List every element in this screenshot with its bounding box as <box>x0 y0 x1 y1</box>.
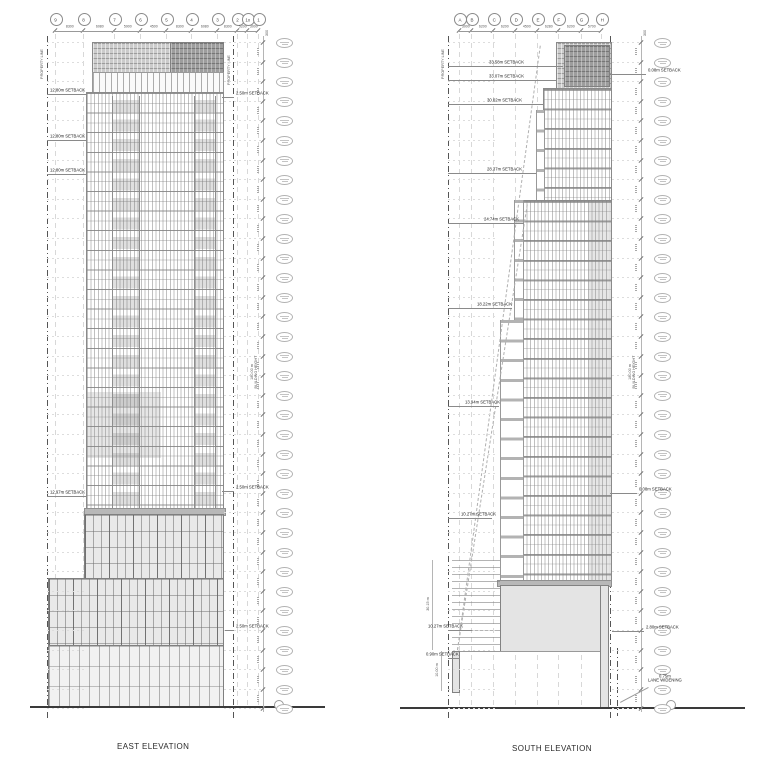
grid-dim-value: 5200 <box>239 25 247 29</box>
setback-label: 0.08m SETBACK <box>648 68 681 72</box>
level-tag <box>276 704 293 714</box>
south-lane-widening-line <box>617 648 618 716</box>
floor-height-dim <box>257 186 259 193</box>
floor-line-right <box>612 81 639 82</box>
floor-line-left <box>448 493 496 494</box>
floor-line-right <box>224 42 261 43</box>
floor-line-left <box>448 375 496 376</box>
level-tag <box>276 254 293 264</box>
floor-line-left <box>47 258 84 259</box>
level-tag <box>654 214 671 224</box>
floor-line-right <box>612 277 639 278</box>
east-midrise-shaded-band <box>87 392 161 458</box>
level-tag <box>276 97 293 107</box>
floor-height-dim <box>257 440 259 447</box>
level-tag <box>654 587 671 597</box>
floor-line-left <box>47 179 84 180</box>
south-podium-wall <box>500 585 608 652</box>
floor-line-left <box>448 316 496 317</box>
floor-height-dim <box>635 107 637 114</box>
grid-bubble-9: 9 <box>50 13 63 26</box>
floor-height-dim <box>257 499 259 506</box>
setback-leader <box>448 308 512 309</box>
floor-line-right <box>224 101 261 102</box>
floor-line-right <box>612 316 639 317</box>
setback-leader <box>448 104 543 105</box>
south-soffit-line <box>458 651 606 652</box>
grid-dim-value: 4500 <box>150 25 158 29</box>
grid-dim-value: 6200 <box>501 25 509 29</box>
floor-height-dim <box>257 107 259 114</box>
floor-height-dim <box>635 88 637 95</box>
floor-line-right <box>224 238 261 239</box>
floor-height-dim <box>257 127 259 134</box>
floor-line-right <box>224 160 261 161</box>
setback-label: 2.50m SETBACK <box>236 485 269 489</box>
level-tag <box>276 273 293 283</box>
floor-line-left <box>47 160 84 161</box>
floor-line-right <box>612 258 639 259</box>
floor-height-dim <box>257 676 259 683</box>
floor-height-dim <box>635 656 637 663</box>
grid-bubble-D: D <box>510 13 523 26</box>
level-tag <box>276 391 293 401</box>
grid-dim-value: 8300 <box>224 25 232 29</box>
level-tag <box>276 195 293 205</box>
floor-line-right <box>612 708 639 709</box>
south-dim10-line <box>441 651 442 691</box>
floor-line-left <box>448 395 496 396</box>
floor-line-left <box>47 434 84 435</box>
east-balcony-stack-2 <box>194 96 216 508</box>
floor-line-left <box>448 336 496 337</box>
floor-line-left <box>448 238 496 239</box>
floor-line-left <box>448 610 496 611</box>
floor-line-right <box>612 552 639 553</box>
setback-label: 33.07m SETBACK <box>489 74 524 78</box>
setback-leader <box>222 97 234 98</box>
floor-line-left <box>47 101 84 102</box>
setback-label: 12.80m SETBACK <box>50 88 85 92</box>
grid-bubble-G: G <box>576 13 589 26</box>
grid-bubble-H: H <box>596 13 609 26</box>
floor-height-dim <box>257 656 259 663</box>
setback-leader <box>225 630 234 631</box>
floor-line-right <box>612 689 639 690</box>
floor-height-dim <box>257 146 259 153</box>
setback-leader <box>448 66 563 67</box>
floor-line-right <box>224 571 261 572</box>
grid-bubble-C: C <box>488 13 501 26</box>
level-tag <box>654 704 671 714</box>
grid-dim-value: 5900 <box>124 25 132 29</box>
level-tag <box>276 312 293 322</box>
floor-height-dim <box>257 303 259 310</box>
level-tag <box>654 97 671 107</box>
east-amenity-level <box>92 72 224 94</box>
floor-line-left <box>448 669 496 670</box>
level-tag <box>654 234 671 244</box>
level-tag <box>654 116 671 126</box>
floor-line-left <box>47 81 84 82</box>
floor-line-left <box>47 277 84 278</box>
floor-line-left <box>47 238 84 239</box>
floor-line-right <box>612 297 639 298</box>
floor-line-right <box>612 238 639 239</box>
level-tag <box>276 371 293 381</box>
level-tag <box>654 430 671 440</box>
floor-line-left <box>47 120 84 121</box>
floor-line-left <box>47 218 84 219</box>
grid-dim-value: 6280 <box>544 25 552 29</box>
floor-line-right <box>224 493 261 494</box>
floor-height-dim <box>635 127 637 134</box>
east-upper-podium <box>84 514 224 580</box>
floor-height-dim <box>635 225 637 232</box>
floor-line-right <box>612 199 639 200</box>
level-tag <box>654 352 671 362</box>
grid-line-2 <box>237 34 238 706</box>
grid-dim-value: 5700 <box>588 25 596 29</box>
floor-height-dim <box>635 676 637 683</box>
floor-height-dim <box>257 342 259 349</box>
setback-leader <box>610 74 646 75</box>
level-tag <box>276 332 293 342</box>
floor-height-dim <box>635 558 637 565</box>
floor-line-left <box>47 454 84 455</box>
level-tag <box>654 254 671 264</box>
south-lane-widening-label: 0.75mLANE WIDENING <box>648 674 682 682</box>
floor-line-left <box>448 708 496 709</box>
level-tag <box>276 567 293 577</box>
floor-line-right <box>612 454 639 455</box>
setback-leader <box>222 491 234 492</box>
grid-dim-value: 8300 <box>66 25 74 29</box>
floor-line-left <box>448 140 496 141</box>
grid-bubble-E: E <box>532 13 545 26</box>
floor-line-right <box>224 81 261 82</box>
floor-height-dim <box>635 342 637 349</box>
floor-line-left <box>448 356 496 357</box>
floor-line-left <box>47 650 84 651</box>
level-tag <box>654 332 671 342</box>
floor-line-left <box>448 473 496 474</box>
south-elevation-drawing: ABCDEFGH3000620062004500628062005700 PRO… <box>380 0 757 776</box>
setback-label: 10.27m SETBACK <box>461 512 496 516</box>
grid-dim-value: 4500 <box>523 25 531 29</box>
east-property-line-right <box>233 36 234 718</box>
floor-line-left <box>47 571 84 572</box>
floor-height-dim <box>635 146 637 153</box>
grid-bubble-F: F <box>553 13 566 26</box>
floor-height-dim <box>635 499 637 506</box>
floor-line-right <box>612 101 639 102</box>
level-tag <box>276 234 293 244</box>
floor-height-dim <box>635 538 637 545</box>
floor-line-left <box>47 473 84 474</box>
grid-line-1x <box>247 34 248 706</box>
setback-label: 12.80m SETBACK <box>50 134 85 138</box>
grid-bubble-6: 6 <box>135 13 148 26</box>
floor-line-right <box>612 62 639 63</box>
floor-height-dim <box>635 578 637 585</box>
level-tag <box>276 646 293 656</box>
floor-height-dim <box>257 421 259 428</box>
level-tag <box>276 175 293 185</box>
floor-line-right <box>224 414 261 415</box>
grid-line-1 <box>258 34 259 706</box>
floor-line-left <box>47 375 84 376</box>
floor-line-left <box>47 512 84 513</box>
floor-line-right <box>224 669 261 670</box>
floor-line-left <box>47 591 84 592</box>
floor-line-right <box>224 610 261 611</box>
floor-height-dim <box>257 48 259 55</box>
floor-line-left <box>448 160 496 161</box>
south-upper-step-ledges <box>536 110 545 200</box>
level-tag <box>654 391 671 401</box>
floor-line-left <box>448 179 496 180</box>
floor-line-left <box>47 552 84 553</box>
floor-height-dim <box>257 401 259 408</box>
floor-height-dim <box>635 597 637 604</box>
setback-label: 28.37m SETBACK <box>487 167 522 171</box>
level-tag <box>276 548 293 558</box>
setback-leader <box>448 630 472 631</box>
level-tag <box>276 77 293 87</box>
level-tag <box>276 116 293 126</box>
floor-height-dim <box>257 538 259 545</box>
grid-bubble-7: 7 <box>109 13 122 26</box>
floor-height-dim <box>635 303 637 310</box>
level-tag <box>276 352 293 362</box>
floor-height-dim <box>257 68 259 75</box>
floor-height-dim <box>635 695 637 702</box>
floor-line-right <box>224 140 261 141</box>
setback-leader <box>47 140 86 141</box>
grid-bubble-8: 8 <box>78 13 91 26</box>
floor-height-dim <box>635 186 637 193</box>
level-tag <box>654 606 671 616</box>
floor-line-right <box>224 473 261 474</box>
grid-bubble-5: 5 <box>161 13 174 26</box>
floor-line-left <box>448 591 496 592</box>
setback-label: 0.08m SETBACK <box>639 487 672 491</box>
floor-height-dim <box>257 166 259 173</box>
level-tag <box>276 626 293 636</box>
setback-leader <box>448 658 460 659</box>
east-elevation-drawing: 987654321x183006080590045008300608083005… <box>0 0 380 776</box>
level-tag <box>654 58 671 68</box>
south-right-column <box>600 585 609 708</box>
level-tag <box>276 156 293 166</box>
setback-leader <box>448 173 536 174</box>
grid-bubble-3: 3 <box>212 13 225 26</box>
floor-line-right <box>224 120 261 121</box>
floor-line-left <box>47 42 84 43</box>
floor-line-right <box>224 277 261 278</box>
floor-height-dim <box>635 460 637 467</box>
grid-dim-value: 6200 <box>566 25 574 29</box>
grid-dim-value: 6200 <box>479 25 487 29</box>
setback-label: 12.97m SETBACK <box>50 490 85 494</box>
setback-label: 13.94m SETBACK <box>465 400 500 404</box>
setback-label: 2.80m SETBACK <box>646 625 679 629</box>
floor-line-right <box>612 591 639 592</box>
floor-height-dim <box>257 244 259 251</box>
level-tag <box>654 508 671 518</box>
floor-height-dim <box>257 323 259 330</box>
floor-line-right <box>612 669 639 670</box>
south-upper-shaft <box>543 88 612 202</box>
floor-line-right <box>612 532 639 533</box>
level-tag <box>276 58 293 68</box>
level-tag <box>276 136 293 146</box>
floor-line-right <box>224 258 261 259</box>
floor-height-dim <box>257 558 259 565</box>
level-tag <box>276 685 293 695</box>
floor-line-left <box>47 630 84 631</box>
level-tag <box>654 685 671 695</box>
floor-line-left <box>47 669 84 670</box>
south-shaft-shaded-strip <box>588 202 609 582</box>
floor-height-dim <box>635 48 637 55</box>
east-elevation-title: EAST ELEVATION <box>117 742 189 751</box>
setback-leader <box>448 80 557 81</box>
floor-line-left <box>47 297 84 298</box>
floor-height-dim <box>257 578 259 585</box>
grid-dim-line <box>459 31 601 32</box>
level-tag <box>276 293 293 303</box>
floor-line-left <box>448 532 496 533</box>
floor-line-right <box>612 610 639 611</box>
level-tag <box>276 587 293 597</box>
floor-height-dim <box>257 519 259 526</box>
level-tag <box>654 469 671 479</box>
floor-line-left <box>448 42 496 43</box>
floor-line-left <box>448 650 496 651</box>
floor-line-left <box>47 62 84 63</box>
level-tag <box>654 450 671 460</box>
floor-height-dim <box>257 264 259 271</box>
floor-line-right <box>224 199 261 200</box>
floor-line-right <box>612 414 639 415</box>
floor-height-dim <box>257 284 259 291</box>
grid-dim-value: 6080 <box>95 25 103 29</box>
setback-label: 18.22m SETBACK <box>477 302 512 306</box>
level-tag <box>654 410 671 420</box>
floor-height-dim <box>635 244 637 251</box>
south-lower-step-ledges <box>500 320 524 585</box>
floor-height-dim <box>635 421 637 428</box>
east-lower-podium <box>48 578 224 647</box>
setback-label: 12.80m SETBACK <box>50 168 85 172</box>
level-tag <box>654 371 671 381</box>
floor-line-right <box>224 552 261 553</box>
floor-height-dim <box>635 205 637 212</box>
grid-dim-value: 3000 <box>249 25 257 29</box>
level-tag <box>654 38 671 48</box>
level-tag <box>276 214 293 224</box>
floor-height-dim <box>635 284 637 291</box>
floor-line-right <box>224 62 261 63</box>
floor-line-right <box>224 512 261 513</box>
floor-line-left <box>448 689 496 690</box>
level-tag <box>654 528 671 538</box>
floor-line-left <box>47 316 84 317</box>
floor-line-right <box>224 434 261 435</box>
setback-leader <box>47 496 86 497</box>
level-tag <box>276 665 293 675</box>
floor-line-right <box>612 434 639 435</box>
grid-bubble-4: 4 <box>186 13 199 26</box>
floor-height-dim <box>257 636 259 643</box>
setback-leader <box>612 631 644 632</box>
floor-line-right <box>224 218 261 219</box>
floor-line-left <box>47 708 84 709</box>
floor-height-dim <box>635 323 637 330</box>
floor-line-left <box>448 552 496 553</box>
floor-line-right <box>612 120 639 121</box>
floor-height-dim <box>635 519 637 526</box>
level-tag <box>276 508 293 518</box>
floor-line-right <box>612 512 639 513</box>
setback-label: 33.58m SETBACK <box>489 60 524 64</box>
south-top-dark-panel <box>564 45 610 87</box>
floor-line-left <box>47 689 84 690</box>
floor-line-right <box>224 179 261 180</box>
floor-height-dim <box>257 460 259 467</box>
floor-line-right <box>612 218 639 219</box>
level-tag <box>654 293 671 303</box>
level-tag <box>654 548 671 558</box>
level-tag <box>654 646 671 656</box>
setback-leader <box>448 518 492 519</box>
floor-height-dim <box>635 480 637 487</box>
level-tag <box>654 175 671 185</box>
floor-line-left <box>448 414 496 415</box>
floor-height-dim <box>635 440 637 447</box>
floor-line-right <box>224 316 261 317</box>
floor-line-left <box>448 454 496 455</box>
floor-line-left <box>448 277 496 278</box>
floor-line-left <box>448 120 496 121</box>
level-tag <box>654 77 671 87</box>
floor-line-right <box>224 297 261 298</box>
east-ground-floor <box>48 645 224 708</box>
level-tag <box>276 430 293 440</box>
south-property-line-left <box>448 36 449 718</box>
floor-height-dim <box>257 225 259 232</box>
setback-label: 2.50m SETBACK <box>236 624 269 628</box>
setback-label: 10.27m SETBACK <box>428 624 463 628</box>
floor-height-dim <box>635 166 637 173</box>
level-tag <box>654 567 671 577</box>
floor-height-dim <box>635 264 637 271</box>
setback-leader <box>47 94 86 95</box>
floor-height-dim <box>635 636 637 643</box>
floor-line-left <box>448 297 496 298</box>
floor-line-left <box>47 414 84 415</box>
floor-line-right <box>224 591 261 592</box>
floor-line-right <box>612 650 639 651</box>
level-tag <box>654 136 671 146</box>
floor-line-left <box>448 258 496 259</box>
floor-line-left <box>47 610 84 611</box>
floor-height-dim <box>257 695 259 702</box>
level-tag <box>654 312 671 322</box>
grid-dim-line <box>55 31 258 32</box>
